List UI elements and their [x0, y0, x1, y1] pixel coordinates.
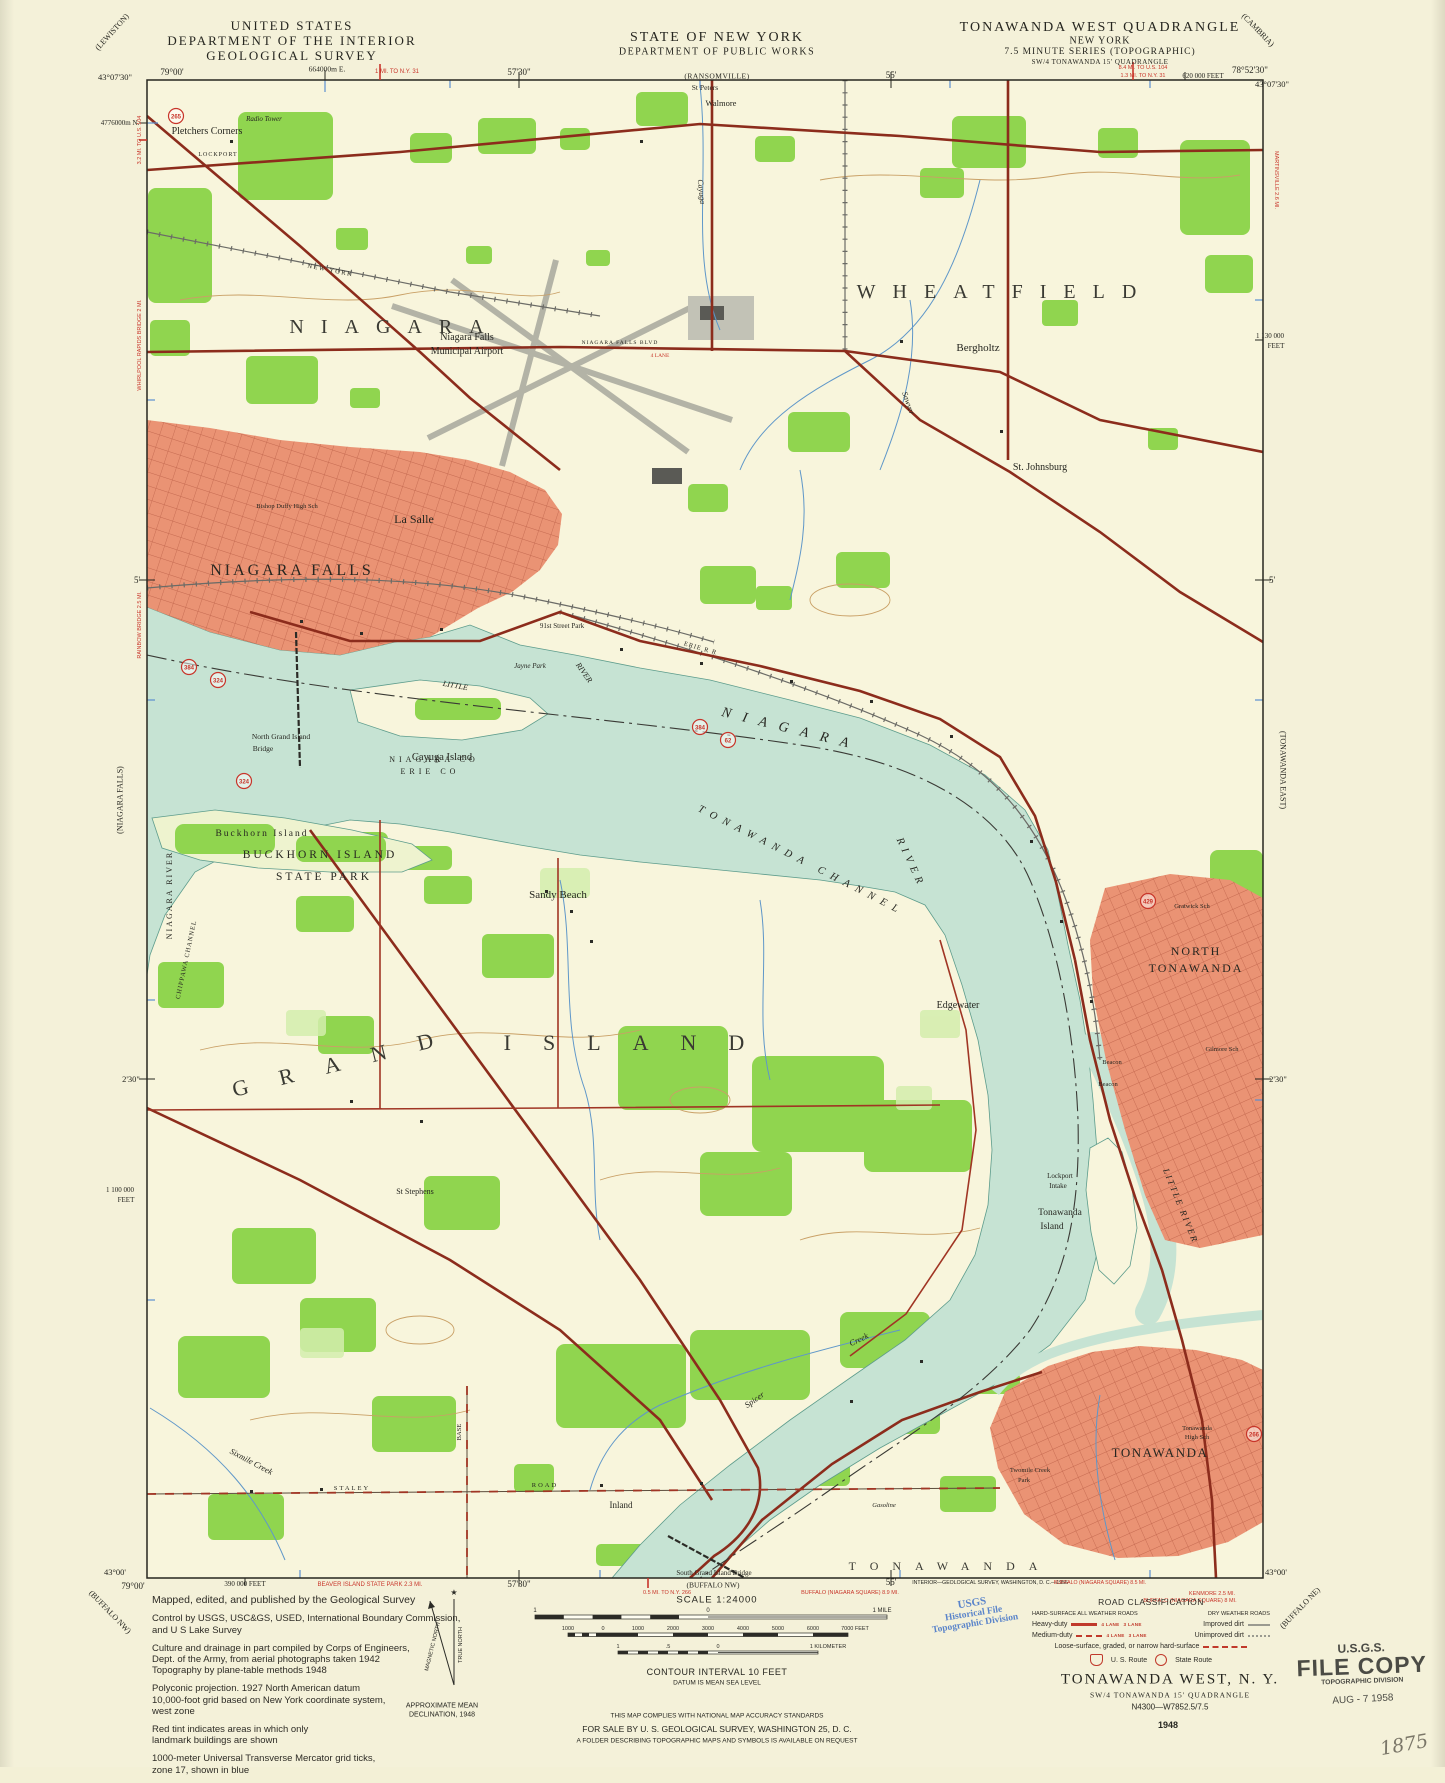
imprint-interior: INTERIOR—GEOLOGICAL SURVEY, WASHINGTON, …: [912, 1580, 1068, 1586]
contour-interval: CONTOUR INTERVAL 10 FEET: [647, 1667, 788, 1677]
state-line1: STATE OF NEW YORK: [630, 30, 804, 46]
declination-diagram: ★ TRUE NORTH MAGNETIC NORTH: [392, 1585, 502, 1705]
label-ngi-bridge2: Bridge: [253, 744, 274, 753]
label-91st-park: 91st Street Park: [540, 622, 585, 630]
red-note-left1: 3.2 MI. TO U.S. 104: [137, 116, 143, 165]
label-bergholtz: Bergholtz: [956, 342, 999, 354]
sheet-reference: N4300—W7852.5/7.5: [1132, 1703, 1209, 1712]
road-classification: ROAD CLASSIFICATION HARD-SURFACE ALL WEA…: [1032, 1597, 1270, 1666]
adjoining-tonawanda-east: (TONAWANDA EAST): [1279, 731, 1288, 809]
road-class-title: ROAD CLASSIFICATION: [1032, 1597, 1270, 1607]
label-jayne-park: Jayne Park: [514, 662, 547, 670]
label-4lane-red: 4 LANE: [651, 353, 670, 359]
datum-note: DATUM IS MEAN SEA LEVEL: [673, 1680, 761, 1687]
utm-easting-label: 664000m E.: [309, 65, 346, 74]
tick-5730: 57'30": [507, 67, 530, 77]
svg-text:1 MILE: 1 MILE: [872, 1608, 891, 1614]
improved-dirt-sample: [1248, 1624, 1270, 1626]
sheet-year: 1948: [1158, 1720, 1178, 1730]
us-route-label: U. S. Route: [1111, 1657, 1147, 1664]
coord-sw-lat: 43°00': [104, 1567, 126, 1577]
svg-text:1 KILOMETER: 1 KILOMETER: [810, 1644, 846, 1650]
label-airport-line1: Niagara Falls: [440, 332, 494, 343]
stamp-file-copy: FILE COPY: [1293, 1653, 1430, 1681]
label-nf-blvd: NIAGARA FALLS BLVD: [582, 340, 659, 346]
coord-ne-lon: 78°52'30": [1232, 65, 1268, 75]
label-walmore: Walmore: [706, 98, 737, 108]
svg-text:265: 265: [171, 115, 182, 121]
red-note-ny31: 1 MI. TO N.Y. 31: [375, 69, 419, 75]
label-staley: STALEY: [334, 1485, 370, 1492]
folder-note: A FOLDER DESCRIBING TOPOGRAPHIC MAPS AND…: [577, 1738, 858, 1745]
tick-right-230: 2'30": [1269, 1074, 1287, 1084]
label-inland: Inland: [610, 1500, 633, 1510]
label-north-tonawanda2: TONAWANDA: [1149, 961, 1244, 975]
loose-surface-sample: [1203, 1646, 1247, 1648]
unimproved-dirt-label: Unimproved dirt: [1195, 1632, 1244, 1639]
lane4-note: 4 LANE: [1101, 1622, 1119, 1627]
label-sandy-beach: Sandy Beach: [529, 889, 587, 901]
quad-line1: TONAWANDA WEST QUADRANGLE: [960, 20, 1241, 36]
red-note-left2: WHIRLPOOL RAPIDS BRIDGE 2 MI.: [137, 299, 143, 390]
label-radio-tower: Radio Tower: [245, 115, 282, 123]
label-twomile-park1: Twomile Creek: [1010, 1467, 1051, 1474]
label-edgewater: Edgewater: [937, 1000, 980, 1011]
heavy-duty-label: Heavy-duty: [1032, 1621, 1067, 1628]
declination-caption1: APPROXIMATE MEAN: [406, 1703, 478, 1710]
topo-map: Pletchers Corners Radio Tower LOCKPORT N…: [0, 0, 1445, 1767]
label-road: ROAD: [532, 1482, 558, 1489]
svg-text:4000: 4000: [737, 1626, 749, 1632]
label-beacon1: Beacon: [1102, 1059, 1122, 1066]
coord-sw-lon: 79°00': [121, 1581, 144, 1591]
label-island: ISLAND: [504, 1030, 777, 1055]
state-route-shield: 324: [237, 774, 252, 789]
svg-text:324: 324: [239, 780, 250, 786]
svg-text:0: 0: [706, 1608, 710, 1614]
label-erie-co: ERIE CO: [401, 767, 460, 776]
quad-line2: NEW YORK: [1069, 36, 1130, 47]
utm-northing-label: 4776000m N.: [101, 119, 140, 127]
label-tonawanda-island1: Tonawanda: [1038, 1208, 1082, 1218]
label-lockport-road: LOCKPORT: [198, 152, 237, 158]
note-utm: 1000-meter Universal Transverse Mercator…: [152, 1753, 502, 1775]
label-niagara-falls-city: NIAGARA FALLS: [210, 562, 374, 579]
label-lockport-intake1: Lockport: [1047, 1172, 1073, 1180]
medium-duty-label: Medium-duty: [1032, 1632, 1072, 1639]
feet-1100000-a: 1 100 000: [106, 1186, 134, 1194]
state-route-icon: [1155, 1654, 1167, 1666]
lane4-note2: 4 LANE: [1106, 1633, 1124, 1638]
cayuga-island-woods: [415, 698, 501, 720]
label-beacon2: Beacon: [1098, 1081, 1118, 1088]
lane3-note: 3 LANE: [1124, 1622, 1142, 1627]
medium-duty-sample: [1076, 1635, 1102, 1637]
label-tonawanda-city: TONAWANDA: [1112, 1445, 1209, 1460]
feet-1130000-b: FEET: [1268, 342, 1285, 350]
loose-surface-label: Loose-surface, graded, or narrow hard-su…: [1055, 1643, 1200, 1650]
label-lockport-intake2: Intake: [1049, 1182, 1067, 1190]
true-north-label: TRUE NORTH: [458, 1627, 464, 1663]
improved-dirt-label: Improved dirt: [1203, 1621, 1244, 1628]
adjoining-niagara-falls: (NIAGARA FALLS): [116, 766, 125, 834]
feet-1130000-a: 1 130 000: [1256, 332, 1284, 340]
label-north-tonawanda1: NORTH: [1171, 944, 1222, 958]
feet-390000: 390 000 FEET: [224, 1580, 265, 1588]
declination-caption2: DECLINATION, 1948: [409, 1712, 475, 1719]
state-route-shield: 62: [721, 733, 736, 748]
coord-nw-lon: 79°00': [160, 67, 183, 77]
state-route-shield: 384: [182, 660, 197, 675]
state-route-shield: 324: [211, 673, 226, 688]
lane3-note2: 3 LANE: [1129, 1633, 1147, 1638]
agency-line3: GEOLOGICAL SURVEY: [206, 48, 378, 64]
state-line2: DEPARTMENT OF PUBLIC WORKS: [619, 47, 815, 58]
svg-text:266: 266: [1249, 1433, 1260, 1439]
true-north-star: ★: [450, 1588, 457, 1597]
label-airport-line2: Municipal Airport: [431, 346, 504, 357]
svg-text:.5: .5: [666, 1644, 671, 1650]
svg-text:1: 1: [616, 1644, 619, 1650]
svg-text:2000: 2000: [667, 1626, 679, 1632]
tick-right-5: 5': [1269, 575, 1275, 585]
red-buffalo-85: BUFFALO (NIAGARA SQUARE) 8.5 MI.: [1054, 1580, 1146, 1586]
svg-text:62: 62: [725, 739, 732, 745]
mile-bar: 1 0 1 MILE: [533, 1608, 891, 1619]
feet-bar: 1000 0 1000 2000 3000 4000 5000 6000 700…: [562, 1626, 870, 1637]
label-gratwick-sch: Gratwick Sch: [1174, 903, 1210, 910]
state-route-label: State Route: [1175, 1657, 1212, 1664]
svg-text:384: 384: [184, 666, 195, 672]
label-niagara-co: NIAGARA CO: [389, 755, 479, 764]
tick-55: 55': [886, 70, 897, 80]
km-bar: 1 .5 0 1 KILOMETER: [616, 1644, 846, 1654]
svg-text:324: 324: [213, 679, 224, 685]
label-tonawanda-township: TONAWANDA: [849, 1559, 1052, 1573]
svg-text:0: 0: [601, 1626, 604, 1632]
note-redtint: Red tint indicates areas in which only l…: [152, 1724, 502, 1746]
state-route-shield: 266: [1247, 1427, 1262, 1442]
agency-line2: DEPARTMENT OF THE INTERIOR: [167, 33, 416, 49]
label-gasoline: Gasoline: [872, 1502, 896, 1509]
label-gilmore-sch: Gilmore Sch: [1205, 1046, 1239, 1053]
svg-text:1: 1: [533, 1608, 537, 1614]
label-sgi-bridge: South Grand Island Bridge: [676, 1569, 751, 1577]
label-wheatfield-township: WHEATFIELD: [857, 281, 1154, 303]
accuracy-note: THIS MAP COMPLIES WITH NATIONAL MAP ACCU…: [611, 1713, 824, 1720]
tick-bottom-55: 55': [886, 1577, 897, 1587]
svg-text:0: 0: [716, 1644, 719, 1650]
svg-text:384: 384: [695, 726, 706, 732]
red-note-martinsville: MARTINSVILLE 2.6 MI.: [1273, 151, 1279, 209]
label-la-salle: La Salle: [394, 512, 434, 526]
red-note-us104: 8.4 MI. TO U.S. 104: [1119, 65, 1168, 71]
label-twomile-park2: Park: [1018, 1477, 1031, 1484]
label-tonawanda-hs2: High Sch: [1185, 1434, 1210, 1441]
coord-se-lat: 43°00': [1265, 1567, 1287, 1577]
airport-building2: [652, 468, 682, 484]
us-route-icon: [1090, 1654, 1103, 1666]
label-buckhorn-park2: STATE PARK: [276, 871, 372, 883]
tick-bottom-5730: 57'30": [507, 1579, 530, 1589]
label-niagara-river-rot: NIAGARA RIVER: [165, 851, 174, 939]
label-pletchers-corners: Pletchers Corners: [172, 126, 243, 137]
label-st-johnsburg: St. Johnsburg: [1013, 462, 1067, 473]
svg-text:429: 429: [1143, 900, 1154, 906]
state-route-shield: 384: [693, 720, 708, 735]
sheet-subtitle: SW/4 TONAWANDA 15' QUADRANGLE: [1090, 1691, 1250, 1700]
red-buffalo-89: BUFFALO (NIAGARA SQUARE) 8.9 MI.: [801, 1590, 899, 1596]
label-buckhorn-park1: BUCKHORN ISLAND: [243, 849, 398, 861]
coord-ne-lat: 43°07'30": [1255, 79, 1289, 89]
scale-bars: 1 0 1 MILE 1000 0 1000 2000 3000 4000 50…: [530, 1606, 910, 1666]
magnetic-north-label: MAGNETIC NORTH: [424, 1622, 442, 1672]
sale-note: FOR SALE BY U. S. GEOLOGICAL SURVEY, WAS…: [582, 1724, 851, 1734]
label-bishop-duffy: Bishop Duffy High Sch: [256, 503, 318, 510]
tick-left-5: 5': [134, 575, 140, 585]
scale-label: SCALE 1:24000: [676, 1595, 757, 1606]
label-buckhorn-island: Buckhorn Island: [215, 829, 308, 839]
road-class-col1: HARD-SURFACE ALL WEATHER ROADS: [1032, 1611, 1138, 1617]
state-route-shield: 265: [169, 109, 184, 124]
red-note-left3: RAINBOW BRIDGE 2.5 MI.: [137, 591, 143, 658]
magnetic-north-arrow: [428, 1601, 435, 1609]
coord-nw-lat: 43°07'30": [98, 72, 132, 82]
red-note-ny31b: 1.3 MI. TO N.Y. 31: [1121, 73, 1166, 79]
label-tonawanda-hs1: Tonawanda: [1182, 1425, 1212, 1432]
label-ngi-bridge1: North Grand Island: [252, 732, 311, 741]
label-tonawanda-island2: Island: [1040, 1222, 1063, 1232]
quad-line3: 7.5 MINUTE SERIES (TOPOGRAPHIC): [1004, 47, 1195, 57]
svg-text:5000: 5000: [772, 1626, 784, 1632]
adjoining-ransomville: (RANSOMVILLE): [684, 72, 749, 81]
label-st-stephens: St Stephens: [396, 1187, 434, 1196]
label-st-peters: St Peters: [692, 83, 719, 92]
svg-text:3000: 3000: [702, 1626, 714, 1632]
svg-text:6000: 6000: [807, 1626, 819, 1632]
tick-left-230: 2'30": [122, 1074, 140, 1084]
unimproved-dirt-sample: [1248, 1635, 1270, 1637]
feet-620000: 620 000 FEET: [1182, 72, 1223, 80]
road-class-col2: DRY WEATHER ROADS: [1208, 1611, 1270, 1617]
adjoining-buffalo-nw-bottom: (BUFFALO NW): [687, 1581, 740, 1590]
svg-text:1000: 1000: [562, 1626, 574, 1632]
svg-text:7000 FEET: 7000 FEET: [841, 1626, 869, 1632]
file-copy-stamp: U.S.G.S. FILE COPY TOPOGRAPHIC DIVISION …: [1293, 1639, 1431, 1708]
sheet-title: TONAWANDA WEST, N. Y.: [1061, 1672, 1279, 1689]
agency-line1: UNITED STATES: [231, 18, 354, 34]
label-base-line: BASE: [456, 1424, 463, 1441]
state-route-shield: 429: [1141, 894, 1156, 909]
feet-1100000-b: FEET: [118, 1196, 135, 1204]
heavy-duty-sample: [1071, 1623, 1097, 1626]
map-sheet: Pletchers Corners Radio Tower LOCKPORT N…: [0, 0, 1445, 1767]
svg-text:1000: 1000: [632, 1626, 644, 1632]
